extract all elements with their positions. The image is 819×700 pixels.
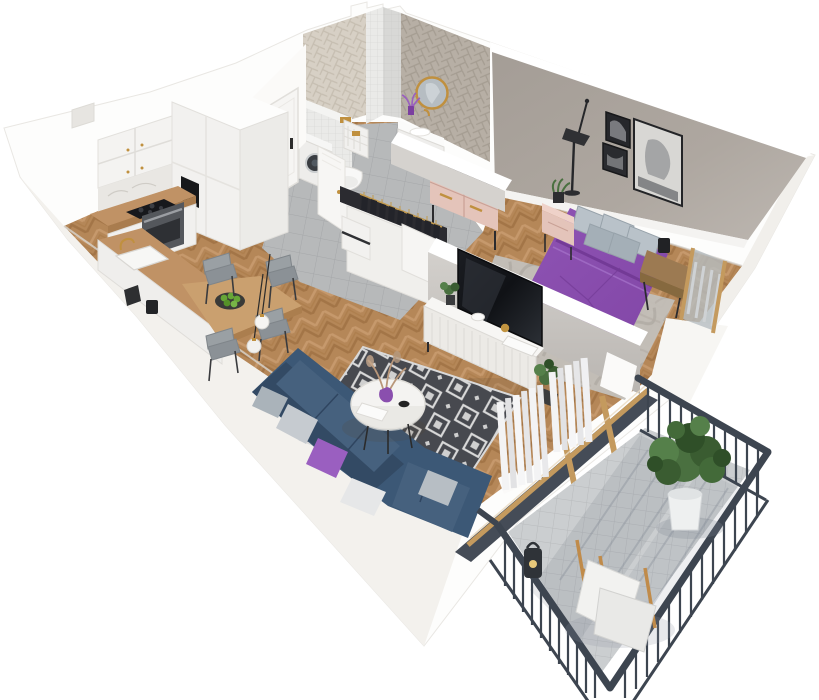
black-bowl: [399, 401, 410, 407]
floorplan-render: [0, 0, 819, 700]
tiled-shaft-column: [366, 7, 401, 124]
floorplan-svg: [0, 0, 819, 700]
balcony-lantern: [524, 543, 542, 578]
gold-cup: [501, 324, 509, 332]
plant-pot: [553, 192, 564, 203]
door-handle-black: [290, 138, 293, 149]
black-kettle: [146, 300, 158, 314]
bathroom-mirror: [417, 78, 448, 109]
table-lamp-black: [658, 238, 670, 253]
